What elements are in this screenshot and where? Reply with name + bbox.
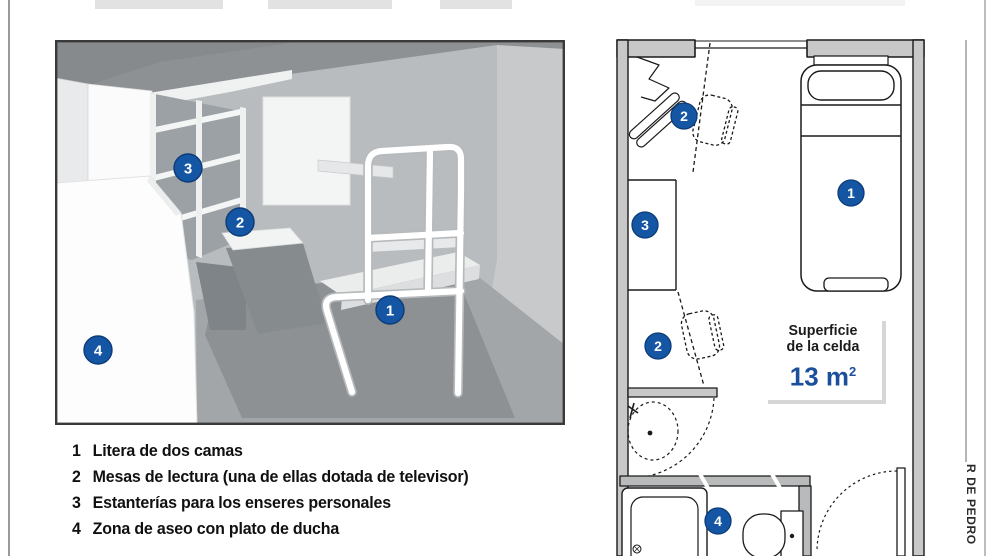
svg-text:1: 1 [386, 302, 394, 319]
marker-desk-plan-top: 2 [671, 103, 697, 129]
marker-bed-plan: 1 [838, 180, 864, 206]
chair [691, 93, 740, 149]
legend-num: 4 [72, 516, 93, 542]
marker-shelves-plan: 3 [632, 212, 658, 238]
door-swing-arc [817, 471, 897, 551]
foot-bench [824, 278, 888, 291]
shower-tray [622, 488, 707, 556]
svg-text:3: 3 [641, 217, 649, 233]
svg-text:4: 4 [94, 342, 103, 359]
legend: 1 Litera de dos camas 2 Mesas de lectura… [72, 438, 494, 542]
screen-swing-arc [629, 398, 714, 478]
legend-num: 3 [72, 490, 93, 516]
cell-floor-plan: 2 3 2 1 4 [600, 30, 990, 556]
left-page-border [8, 0, 10, 556]
clipped-header-bar [95, 0, 223, 9]
svg-text:2: 2 [654, 338, 662, 354]
svg-text:4: 4 [714, 513, 722, 529]
legend-text: Litera de dos camas [93, 438, 243, 464]
marker-desk-plan-bottom: 2 [645, 333, 671, 359]
legend-item-shelves: 3 Estanterías para los enseres personale… [72, 490, 469, 516]
svg-text:2: 2 [236, 214, 244, 231]
area-label-line2: de la celda [767, 339, 879, 355]
marker-bathroom-3d: 4 [84, 336, 112, 364]
marker-desk-3d: 2 [226, 208, 254, 236]
entry-door [817, 468, 905, 556]
infographic-page: 3 2 1 4 [0, 0, 990, 556]
legend-text: Zona de aseo con plato de ducha [93, 516, 339, 542]
chair [680, 308, 726, 361]
legend-item-bathroom: 4 Zona de aseo con plato de ducha [72, 516, 469, 542]
wall-poster [263, 97, 350, 205]
svg-text:3: 3 [184, 160, 192, 177]
marker-shelves-3d: 3 [174, 154, 202, 182]
author-credit: R DE PEDRO [964, 464, 978, 556]
legend-item-bed: 1 Litera de dos camas [72, 438, 469, 464]
legend-item-desks: 2 Mesas de lectura (una de ellas dotada … [72, 464, 469, 490]
reading-desk-plan [678, 292, 725, 386]
toilet [743, 511, 803, 556]
area-label-line1: Superficie [767, 323, 879, 339]
wall-right [913, 40, 924, 556]
washbasin [628, 398, 714, 478]
wall-top-right [807, 40, 924, 57]
cabinet-door [88, 84, 152, 181]
svg-text:2: 2 [680, 108, 688, 124]
marker-bathroom-plan: 4 [705, 508, 731, 534]
svg-text:1: 1 [847, 185, 855, 201]
marker-bed-3d: 1 [376, 296, 404, 324]
headboard-shelf [814, 56, 888, 65]
legend-num: 2 [72, 464, 93, 490]
legend-num: 1 [72, 438, 93, 464]
area-superscript: 2 [849, 364, 856, 379]
clipped-header-bar [440, 0, 512, 9]
clipped-header-bar [695, 0, 905, 6]
cabinet-side [55, 78, 88, 187]
legend-text: Mesas de lectura (una de ellas dotada de… [93, 464, 469, 490]
pillow [808, 71, 894, 100]
legend-text: Estanterías para los enseres personales [93, 490, 391, 516]
clipped-header-bar [268, 0, 392, 9]
window [695, 40, 807, 57]
partition-stub [628, 388, 717, 397]
cell-3d-illustration: 3 2 1 4 [55, 40, 565, 425]
area-value: 13 m2 [764, 357, 882, 392]
bed-plan [801, 56, 901, 291]
cell-area-box: Superficie de la celda 13 m2 [764, 317, 882, 400]
